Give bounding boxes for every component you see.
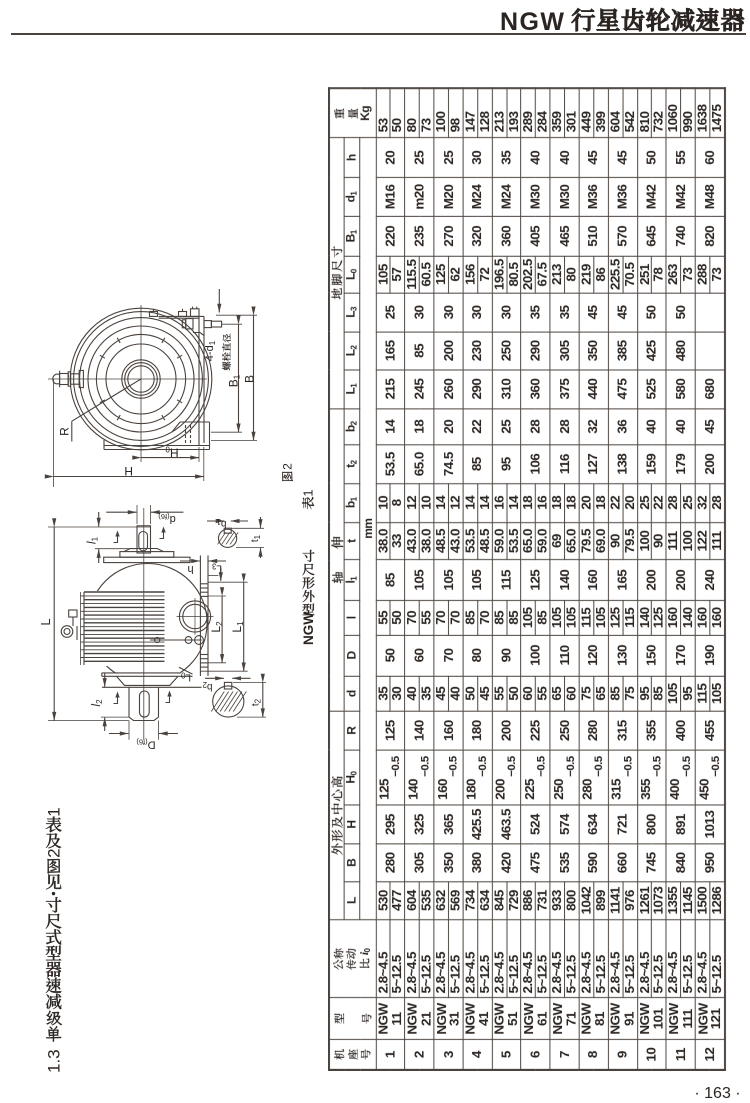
- svg-text:l2: l2: [89, 699, 104, 707]
- svg-text:t1: t1: [250, 534, 262, 542]
- svg-text:NGW: NGW: [500, 8, 564, 36]
- svg-text:D(f6): D(f6): [136, 738, 156, 751]
- svg-text:1: 1: [44, 807, 63, 816]
- svg-text:B1: B1: [226, 374, 241, 387]
- svg-text:b1: b1: [216, 517, 227, 529]
- svg-text:b2: b2: [202, 680, 213, 692]
- svg-text:h: h: [187, 563, 193, 575]
- svg-text:2: 2: [280, 463, 294, 470]
- svg-text:H: H: [124, 464, 133, 478]
- svg-text:· 163 ·: · 163 ·: [694, 1085, 740, 1102]
- svg-text:t2: t2: [251, 698, 263, 706]
- svg-text:1: 1: [301, 489, 316, 496]
- svg-text:L: L: [38, 618, 53, 625]
- svg-text:4-d1: 4-d1: [204, 340, 217, 361]
- svg-text:1.3: 1.3: [44, 1049, 63, 1073]
- svg-text:NGW: NGW: [301, 612, 316, 645]
- svg-text:l1: l1: [84, 536, 99, 544]
- svg-text:B: B: [242, 375, 256, 383]
- svg-text:L2: L2: [209, 621, 224, 633]
- svg-text:L3: L3: [211, 561, 222, 573]
- svg-text:2: 2: [44, 848, 63, 857]
- svg-text:R: R: [57, 427, 71, 436]
- svg-text:L1: L1: [230, 621, 245, 633]
- svg-text:d(f6): d(f6): [158, 512, 176, 525]
- svg-text:L0: L0: [180, 670, 191, 682]
